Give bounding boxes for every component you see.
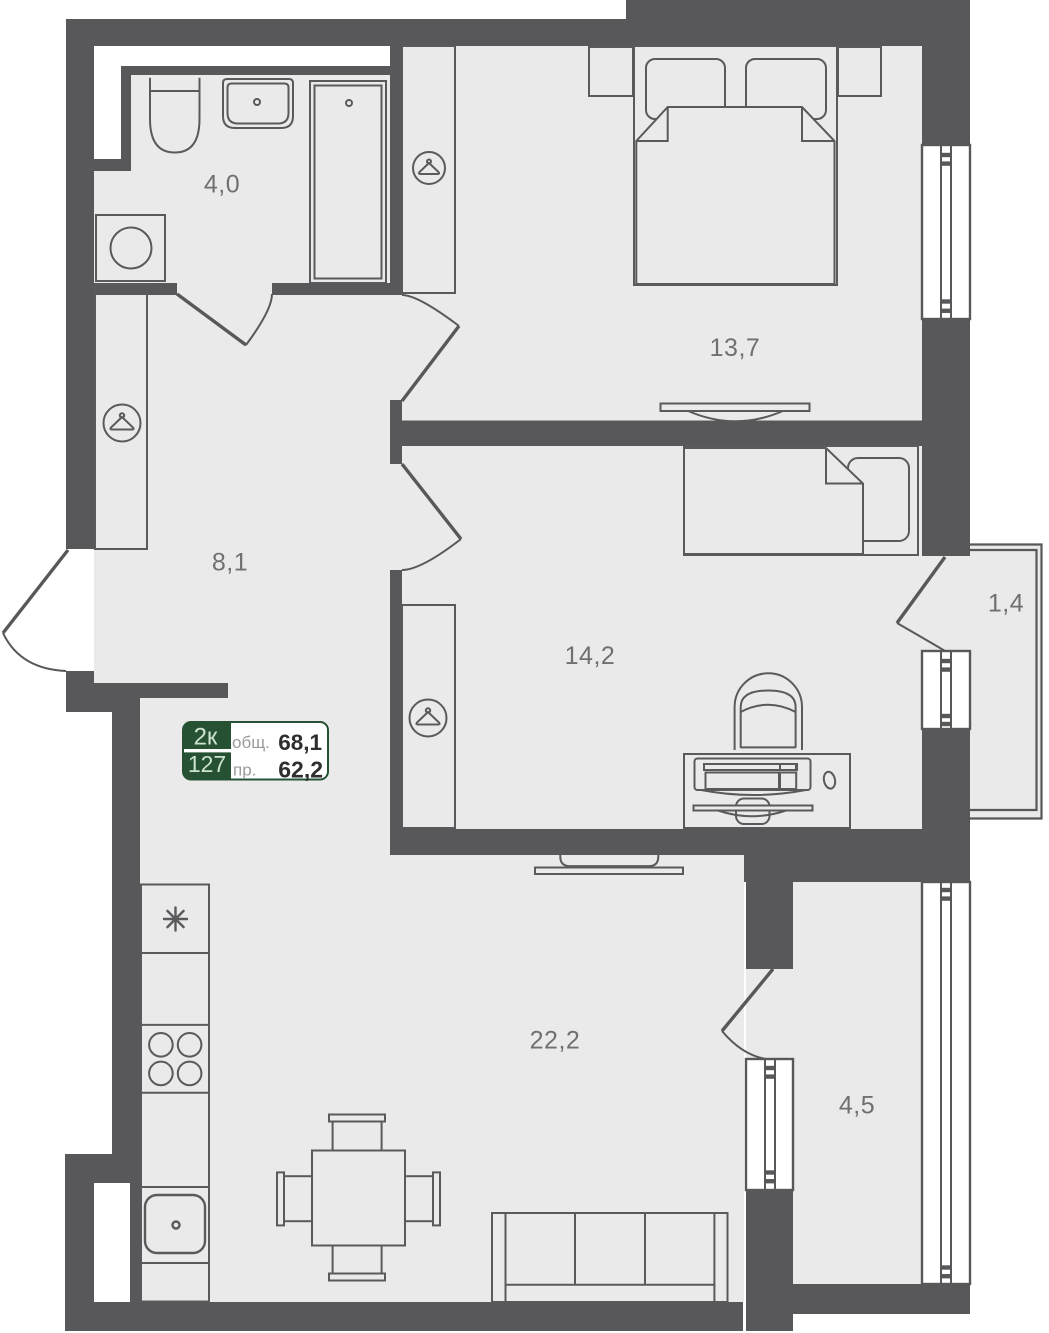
svg-text:13,7: 13,7: [710, 334, 761, 362]
svg-text:4,5: 4,5: [839, 1092, 875, 1120]
svg-text:8,1: 8,1: [212, 549, 248, 577]
svg-text:68,1: 68,1: [278, 730, 322, 755]
svg-text:4,0: 4,0: [204, 171, 240, 199]
svg-text:пр.: пр.: [233, 761, 256, 780]
svg-text:62,2: 62,2: [278, 757, 323, 783]
svg-text:22,2: 22,2: [530, 1027, 581, 1055]
svg-text:2к: 2к: [194, 724, 218, 751]
svg-text:общ.: общ.: [232, 733, 270, 752]
svg-text:1,4: 1,4: [988, 590, 1024, 618]
svg-text:127: 127: [188, 751, 226, 777]
svg-text:14,2: 14,2: [565, 642, 616, 670]
